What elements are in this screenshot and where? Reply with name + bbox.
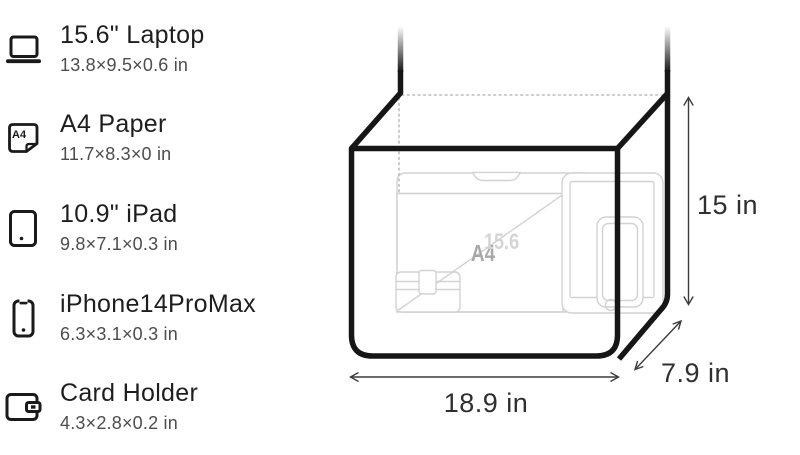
- card-holder-tab: [419, 271, 436, 295]
- right-strap: [665, 26, 671, 72]
- depth-label: 7.9 in: [661, 358, 730, 388]
- bag-dimension-drawing: A4 15.6: [0, 0, 800, 455]
- laptop-diagonal-label: 15.6: [484, 230, 519, 254]
- left-strap: [398, 26, 404, 72]
- bag-drawing-svg: A4 15.6: [0, 0, 800, 455]
- size-comparison-infographic: 15.6" Laptop 13.8×9.5×0.6 in A4 A4 Paper…: [0, 0, 800, 455]
- width-label: 18.9 in: [444, 388, 529, 418]
- height-label: 15 in: [697, 190, 758, 220]
- bag-contents: [396, 172, 663, 313]
